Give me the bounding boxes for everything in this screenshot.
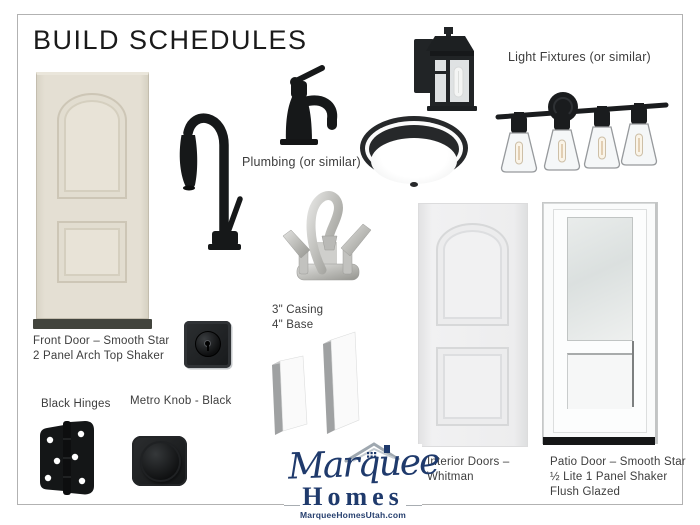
marquee-homes-logo: Marquee Homes MarqueeHomesUtah.com: [284, 444, 422, 522]
front-door-arch-panel: [57, 93, 127, 199]
front-door-label: Front Door – Smooth Star 2 Panel Arch To…: [33, 334, 169, 364]
patio-door-panel: [567, 353, 632, 409]
patio-door-glass: [567, 217, 633, 341]
vanity-light-icon: [492, 82, 672, 177]
interior-door-label: Interior Doors – Whitman: [427, 455, 509, 485]
outdoor-lantern-icon: [410, 27, 482, 115]
casing-trim-icon: [270, 349, 312, 437]
kitchen-faucet-icon: [167, 93, 245, 251]
interior-door-arch-panel: [436, 223, 509, 326]
patio-door-image: [542, 202, 658, 444]
base-trim-icon: [321, 326, 363, 438]
page-title: BUILD SCHEDULES: [33, 25, 308, 56]
bath-faucet-nickel-icon: [277, 186, 377, 283]
bath-faucet-black-icon: [264, 55, 348, 147]
logo-website: MarqueeHomesUtah.com: [284, 510, 422, 520]
logo-brand-script: Marquee: [287, 441, 439, 487]
build-schedules-page: BUILD SCHEDULES Front Door – Smooth Star…: [0, 0, 700, 525]
deadbolt-icon: [184, 321, 231, 368]
logo-brand-name: Homes: [284, 485, 422, 509]
front-door-image: [36, 72, 149, 319]
patio-door-label: Patio Door – Smooth Star ½ Lite 1 Panel …: [550, 455, 686, 500]
trim-label: 3" Casing 4" Base: [272, 303, 323, 333]
hinges-label: Black Hinges: [41, 397, 111, 412]
patio-door-sill: [543, 437, 655, 445]
front-door-square-panel: [57, 221, 127, 283]
knob-label: Metro Knob - Black: [130, 394, 231, 409]
interior-door-image: [418, 203, 528, 447]
light-fixtures-label: Light Fixtures (or similar): [508, 50, 651, 65]
plumbing-label: Plumbing (or similar): [242, 155, 361, 170]
ceiling-light-icon: [360, 116, 468, 187]
front-door-sill: [33, 319, 152, 329]
metro-knob-icon: [132, 436, 187, 486]
hinge-icon: [37, 419, 97, 497]
interior-door-square-panel: [436, 347, 509, 426]
